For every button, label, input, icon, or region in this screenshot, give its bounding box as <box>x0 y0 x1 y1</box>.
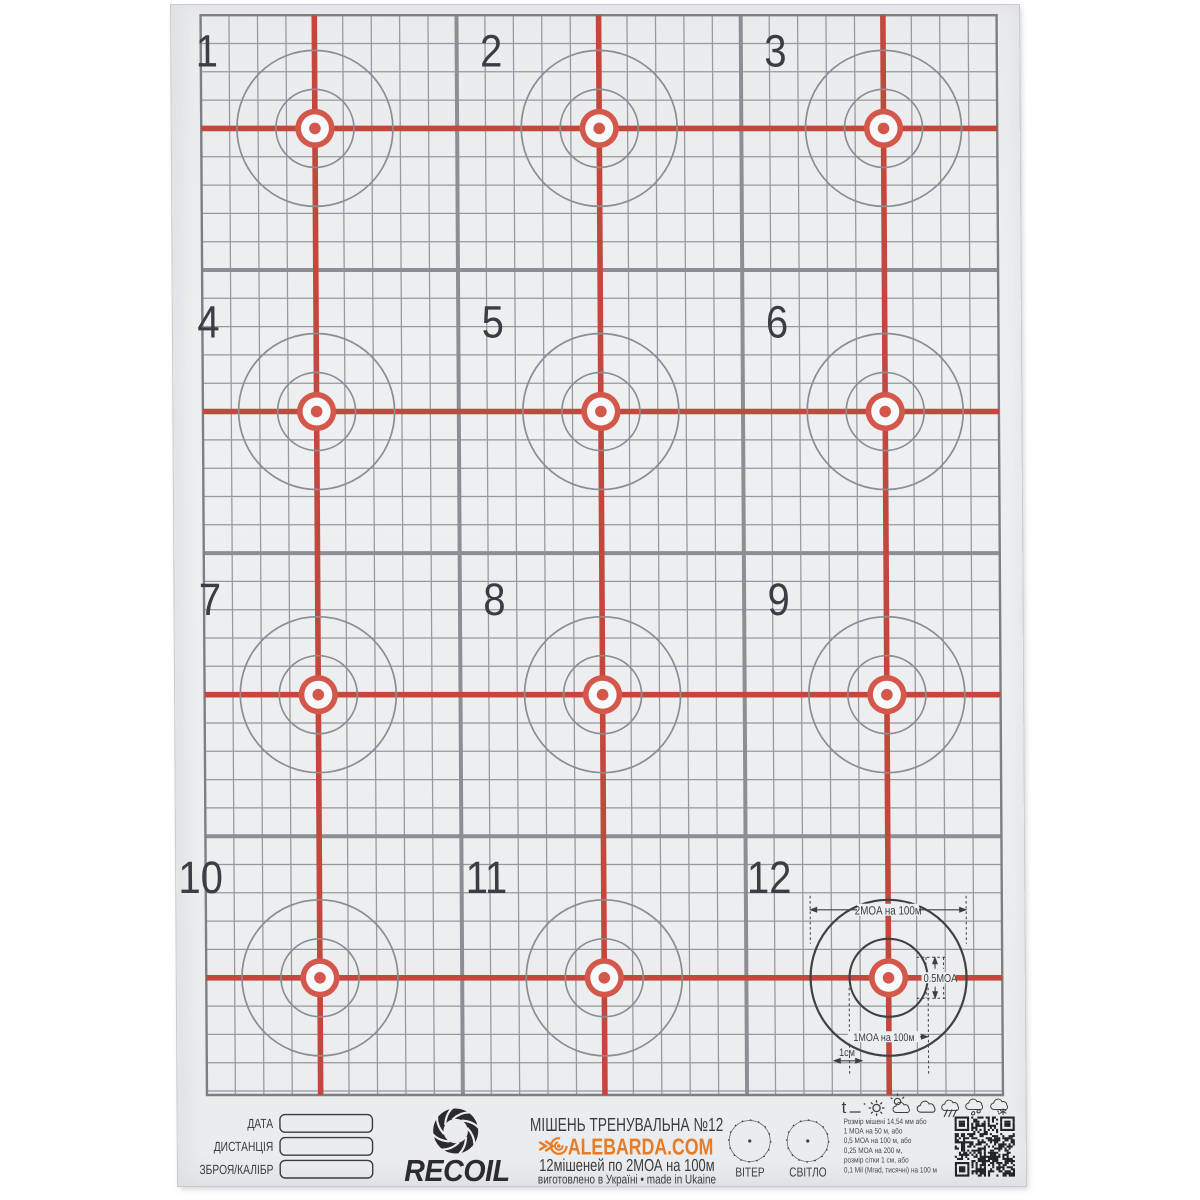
svg-text:10: 10 <box>178 853 223 904</box>
svg-text:Розмір мішені 14,54 мм або: Розмір мішені 14,54 мм або <box>844 1116 927 1126</box>
svg-text:ВІТЕР: ВІТЕР <box>735 1165 765 1179</box>
svg-text:0.5MOA: 0.5MOA <box>924 973 958 985</box>
svg-text:RECOIL: RECOIL <box>404 1154 510 1186</box>
svg-text:8: 8 <box>483 575 506 626</box>
svg-text:9: 9 <box>767 575 790 626</box>
svg-text:1: 1 <box>196 26 219 77</box>
svg-text:виготовлено в Україні • made i: виготовлено в Україні • made in Ukaine <box>538 1173 716 1186</box>
svg-text:розмір сітки 1 см, або: розмір сітки 1 см, або <box>844 1155 909 1165</box>
svg-text:0,5 МОА на 100 м, або: 0,5 МОА на 100 м, або <box>844 1136 912 1146</box>
svg-text:12: 12 <box>747 853 792 904</box>
svg-text:5: 5 <box>481 297 504 348</box>
svg-text:11: 11 <box>465 853 507 904</box>
svg-text:7: 7 <box>199 575 222 626</box>
svg-text:ЗБРОЯ/КАЛІБР: ЗБРОЯ/КАЛІБР <box>199 1162 273 1178</box>
svg-text:2: 2 <box>480 26 503 77</box>
svg-text:t: t <box>841 1098 846 1117</box>
svg-text:4: 4 <box>197 297 220 348</box>
svg-text:1 МОА на 50 м, або: 1 МОА на 50 м, або <box>844 1126 903 1136</box>
svg-text:2MOA на 100м: 2MOA на 100м <box>855 904 922 917</box>
svg-text:1MOA на 100м: 1MOA на 100м <box>853 1032 914 1044</box>
svg-text:3: 3 <box>764 26 787 77</box>
svg-text:ДАТА: ДАТА <box>247 1116 273 1132</box>
svg-text:6: 6 <box>766 297 789 348</box>
svg-text:1см: 1см <box>839 1047 855 1059</box>
svg-text:0,25 МОА на 200 м,: 0,25 МОА на 200 м, <box>844 1145 903 1155</box>
svg-text:0,1 Mil (Mrad, тисячні) на 100: 0,1 Mil (Mrad, тисячні) на 100 м <box>844 1165 937 1175</box>
svg-text:МІШЕНЬ ТРЕНУВАЛЬНА №12: МІШЕНЬ ТРЕНУВАЛЬНА №12 <box>530 1114 723 1136</box>
svg-text:ДИСТАНЦІЯ: ДИСТАНЦІЯ <box>214 1139 274 1155</box>
svg-text:СВІТЛО: СВІТЛО <box>789 1165 826 1179</box>
